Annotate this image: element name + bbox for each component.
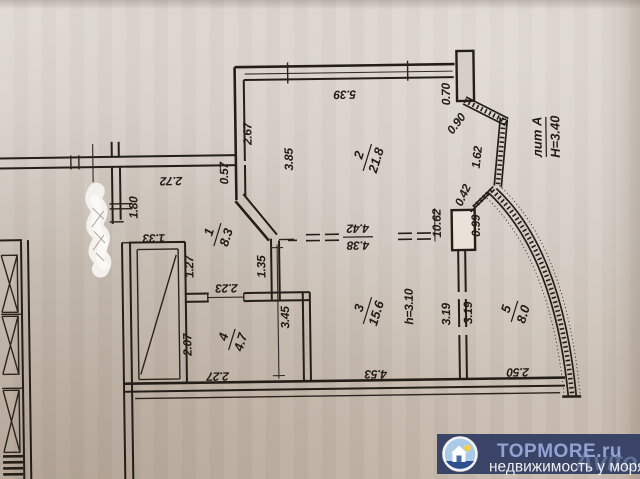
stair-elevator-core [0,240,31,479]
nook-wall [185,292,310,302]
room-label-2: 2 21.8 [347,139,387,176]
bottom-wall-outer [124,378,565,384]
dim-042: 0.42 [452,182,474,209]
top-wall-inner [244,77,454,80]
bottom-wall-inner [124,386,565,392]
whiteout-scribble [91,191,105,269]
opening-threshold [208,297,244,298]
svg-text:4.38: 4.38 [346,238,370,252]
room-label-1: 1 8.3 [198,218,237,251]
watermark-tagline-text: недвижимость у моря [489,459,640,476]
room-label-4: 4 4.7 [213,324,251,355]
corridor-top-wall [0,155,237,168]
corridor-side-wall-upper [112,167,121,224]
floorplan-drawing: 5.39 2.67 3.85 2.72 0.57 1.80 1.33 1.27 … [0,0,640,479]
dim-250: 2.50 [506,365,530,379]
corridor-side-wall-lower [122,243,133,479]
dim-453: 4.53 [364,367,388,381]
dim-133: 1.33 [142,231,165,245]
hall-diagonal-outer [235,201,269,241]
top-wall-outer [235,64,455,67]
dim-180: 1.80 [126,196,140,219]
dim-099: 0.99 [469,214,483,237]
dim-272: 2.72 [159,174,183,188]
dim-057: 0.57 [217,161,231,185]
svg-text:4: 4 [215,330,232,343]
floorplan-photo: 5.39 2.67 3.85 2.72 0.57 1.80 1.33 1.27 … [0,0,640,479]
svg-text:15.6: 15.6 [365,298,387,327]
svg-text:4.42: 4.42 [346,221,370,235]
room-label-3: 3 15.6 [348,292,388,329]
topmore-watermark: Avito Avito TOPMORE.ru недвижимость у мо… [437,434,640,478]
stairs-hatch [3,456,23,479]
dim-162: 1.62 [469,145,485,169]
room4-room3-wall [303,292,311,382]
dim-1062: 10.62 [430,208,444,237]
bottom-wall-third-line [135,393,560,399]
dim-090: 0.90 [444,110,469,137]
dim-319-left: 3.19 [439,302,453,325]
svg-text:21.8: 21.8 [365,145,387,175]
dim-539: 5.39 [333,87,356,101]
dim-319-right: 3.19 [461,301,475,324]
dim-135: 1.35 [254,255,268,278]
wall-stub [112,142,119,157]
dim-127: 1.27 [182,254,196,278]
ceiling-height-label: h=3.10 [402,288,417,325]
topmore-logo-icon [444,438,477,471]
walls-layer [0,59,566,479]
svg-text:лит А: лит А [529,117,545,159]
house-door-icon [457,456,462,463]
room2-left-wall-outer [235,67,237,200]
top-wall-glazing-line [245,71,453,74]
dim-070: 0.70 [439,82,453,105]
dim-227: 2.27 [205,369,230,383]
dim-223: 2.23 [215,281,239,295]
axis-cross [93,144,94,182]
dim-207: 2.07 [180,332,194,357]
sun-icon [464,445,471,452]
svg-text:1: 1 [201,226,217,237]
svg-text:3: 3 [351,301,368,313]
pilaster [456,51,474,101]
room-label-5: 5 8.0 [495,296,533,327]
dim-345: 3.45 [278,306,292,329]
liter-label: лит А Н=3.40 [529,115,563,159]
svg-text:2: 2 [350,148,367,161]
dim-385: 3.85 [282,148,296,171]
closet-diagonal [139,255,178,375]
svg-text:Н=3.40: Н=3.40 [547,115,563,158]
svg-text:5: 5 [498,302,515,314]
dim-267: 2.67 [240,121,254,146]
dim-442-438-fraction: 4.38 4.42 [343,221,373,252]
